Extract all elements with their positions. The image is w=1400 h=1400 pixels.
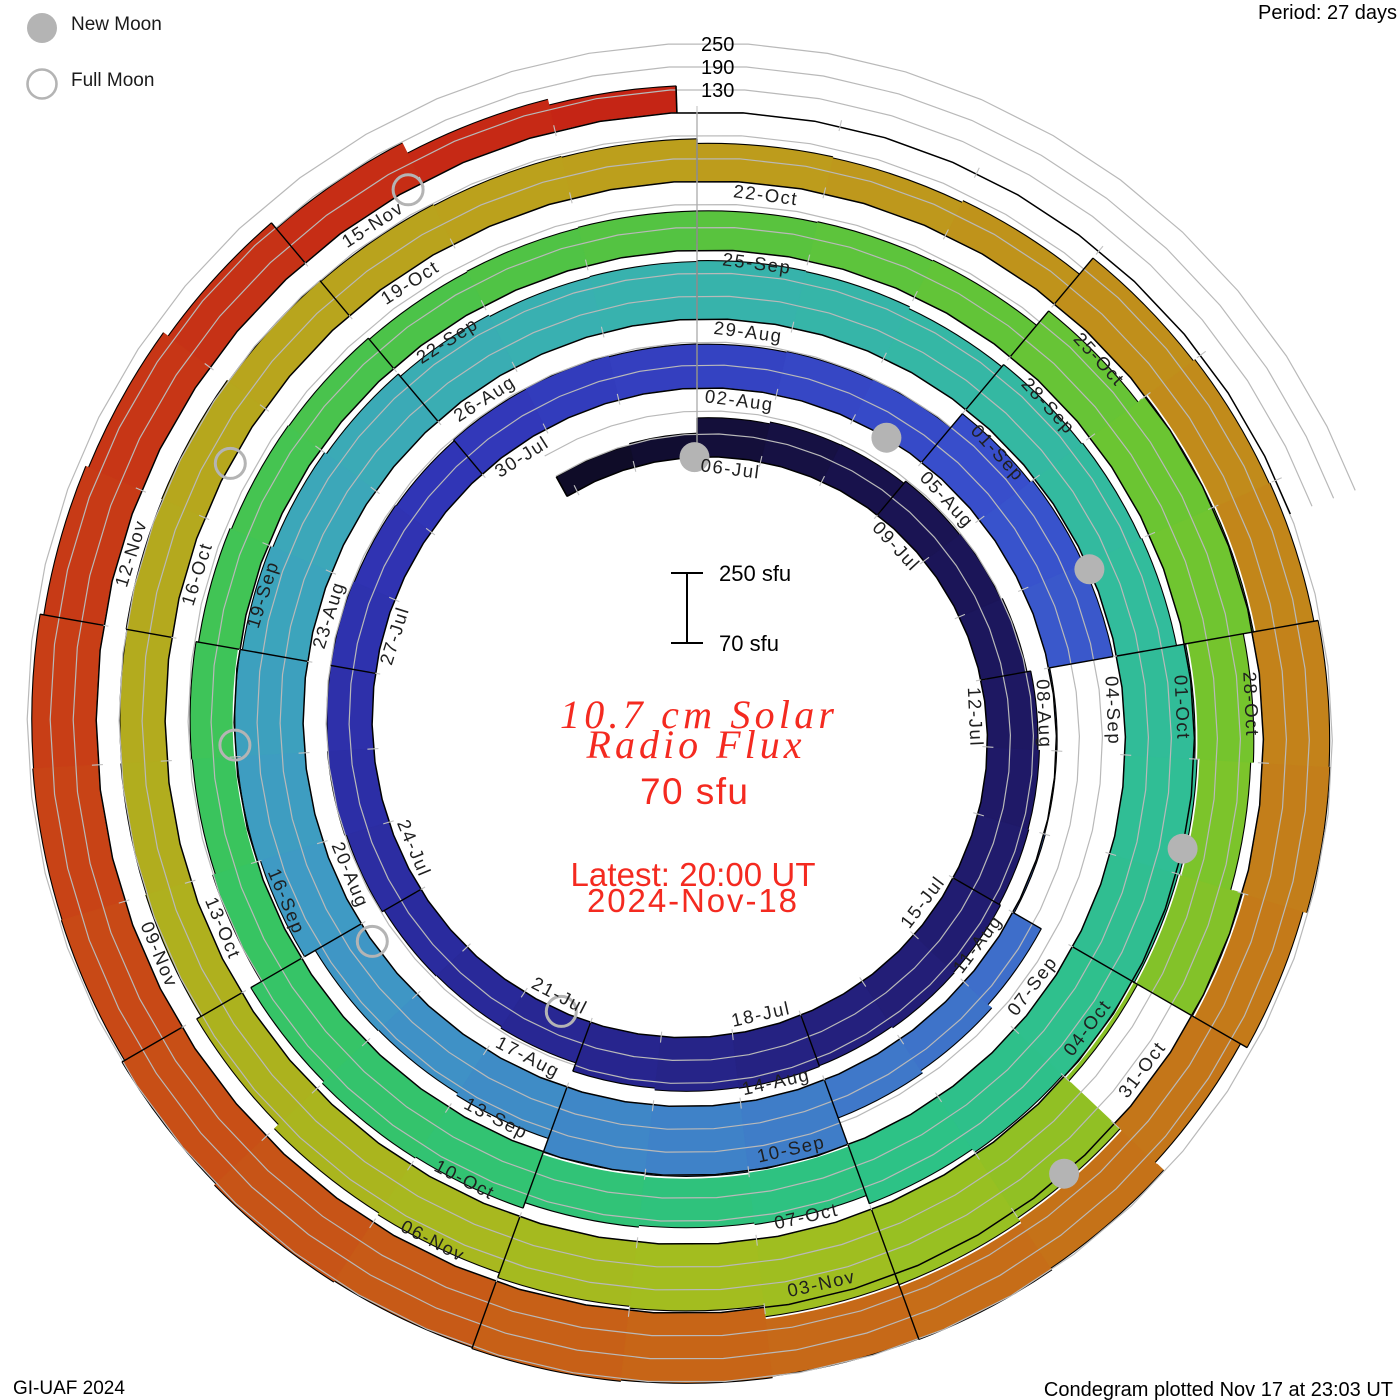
svg-text:Full Moon: Full Moon <box>71 70 154 91</box>
svg-text:12-Jul: 12-Jul <box>964 687 988 748</box>
svg-text:250 sfu: 250 sfu <box>719 561 791 586</box>
svg-text:Radio Flux: Radio Flux <box>586 722 802 767</box>
svg-text:70 sfu: 70 sfu <box>719 631 779 656</box>
svg-text:250: 250 <box>701 34 734 56</box>
svg-text:04-Sep: 04-Sep <box>1101 676 1125 746</box>
svg-text:Condegram plotted Nov 17 at 23: Condegram plotted Nov 17 at 23:03 UT <box>1044 1379 1393 1400</box>
svg-text:130: 130 <box>701 80 734 102</box>
svg-text:2024-Nov-18: 2024-Nov-18 <box>587 882 797 919</box>
svg-text:Period: 27 days: Period: 27 days <box>1258 2 1397 24</box>
svg-text:190: 190 <box>701 57 734 79</box>
svg-text:08-Aug: 08-Aug <box>1032 679 1056 749</box>
svg-text:01-Oct: 01-Oct <box>1170 674 1194 740</box>
svg-text:GI-UAF 2024: GI-UAF 2024 <box>13 1378 125 1399</box>
svg-text:70 sfu: 70 sfu <box>640 771 748 812</box>
svg-text:28-Oct: 28-Oct <box>1239 671 1263 737</box>
svg-text:New Moon: New Moon <box>71 14 162 35</box>
